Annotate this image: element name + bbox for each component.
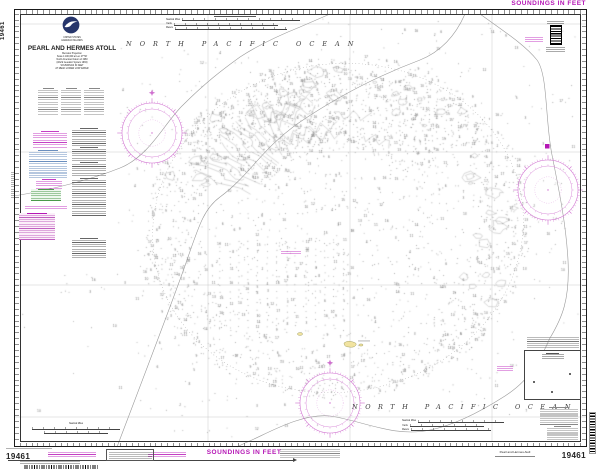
magenta-label-near-inset	[497, 366, 513, 371]
margin-rule-arrowhead	[293, 458, 297, 462]
chart-note-blue	[29, 150, 67, 177]
scale-label-meters: Meters	[166, 27, 173, 30]
chart-note-black-1	[72, 128, 106, 144]
scale-label-yards-2: Yards	[402, 425, 408, 428]
title-region: HAWAIIAN ISLANDS	[61, 40, 82, 43]
scale-label-yards: Yards	[166, 23, 172, 26]
chart-note-magenta-heading	[25, 206, 67, 210]
scale-bars-bottom-left: Nautical Miles	[30, 423, 122, 434]
margin-barcode	[24, 465, 98, 469]
chart-number-margin-vertical: 19461	[0, 4, 6, 40]
magenta-note-near-emblem	[525, 37, 543, 42]
bottom-title-block: Pearl and Hermes Atoll	[482, 451, 548, 456]
latitude-tick-strip-left	[15, 14, 19, 442]
inset-mark-3	[569, 373, 571, 375]
bottom-title-subline	[495, 456, 535, 457]
scale-label-meters-2: Meters	[402, 429, 409, 432]
chart-note-magenta-3	[19, 213, 55, 239]
scale-bar-meters	[175, 27, 287, 30]
scale-bars-top: Nautical Miles Yards Meters	[166, 16, 304, 30]
title-datum2: (World Geodetic System 1984)	[57, 62, 88, 65]
latitude-tick-strip-right	[582, 14, 586, 442]
chart-number-bottom-right: 19461	[552, 451, 586, 460]
inset-caption	[527, 337, 579, 348]
chart-note-green	[31, 189, 61, 200]
chart-title: PEARL AND HERMES ATOLL	[28, 45, 116, 52]
scale-bar-nm	[182, 18, 300, 21]
correction-note-line	[6, 448, 52, 451]
noaa-logo	[62, 16, 80, 34]
longitude-tick-strip-bottom	[20, 443, 581, 447]
scale-bar-br-1	[418, 420, 504, 423]
inset-mark-1	[533, 381, 535, 383]
scale-label-nm: Nautical Miles	[166, 19, 180, 22]
noaa-logo-icon	[62, 16, 80, 34]
left-margin-caption	[11, 172, 14, 198]
production-credit-lines	[280, 449, 340, 458]
scale-bar-bl-1	[32, 427, 120, 430]
scale-bar-yards	[174, 23, 278, 26]
chart-note-magenta-2	[36, 179, 62, 187]
scale-bar-bl-2	[44, 431, 108, 434]
scale-bars-bottom-right: Nautical Miles Yards Meters	[402, 420, 506, 431]
nautical-chart-sheet: 19461 SOUNDINGS IN FEET SOUNDINGS IN FEE…	[0, 0, 600, 469]
title-block: UNITED STATES HAWAIIAN ISLANDS PEARL AND…	[30, 37, 114, 70]
longitude-tick-strip-top	[20, 10, 581, 14]
scale-bar-br-2	[410, 424, 484, 427]
chart-note-black-4	[72, 178, 106, 214]
chart-inner-neatline	[20, 14, 581, 442]
bottom-title-text: Pearl and Hermes Atoll	[482, 451, 548, 455]
inset-mark-2	[551, 391, 553, 393]
magenta-margin-note-1	[48, 452, 96, 457]
scale-bar-br-3	[411, 428, 491, 431]
scale-caption	[214, 16, 255, 17]
print-color-bar	[589, 412, 596, 454]
title-soundings2: AT MEAN LOWER LOW WATER	[55, 68, 88, 71]
emblem-caption-top	[547, 21, 564, 24]
ocean-name-top: NORTH PACIFIC OCEAN	[126, 40, 361, 48]
scale-label-nm-2: Nautical Miles	[69, 423, 83, 426]
chart-note-black-2	[72, 147, 106, 159]
note-block-br-1	[540, 407, 578, 423]
emblem-caption-bottom	[546, 47, 565, 53]
chart-note-black-3	[72, 162, 106, 175]
magenta-lagoon-label	[281, 251, 301, 255]
striped-emblem	[550, 25, 562, 45]
chart-note-black-5	[72, 238, 106, 258]
note-block-br-2	[547, 426, 578, 439]
inset-panel	[524, 350, 581, 400]
scale-label-nm-3: Nautical Miles	[402, 420, 416, 423]
abbreviations-table	[38, 88, 104, 114]
inset-title	[542, 353, 564, 359]
chart-note-magenta-1	[33, 131, 67, 146]
margin-note-box	[106, 449, 154, 461]
soundings-unit-label-top: SOUNDINGS IN FEET	[468, 0, 586, 7]
